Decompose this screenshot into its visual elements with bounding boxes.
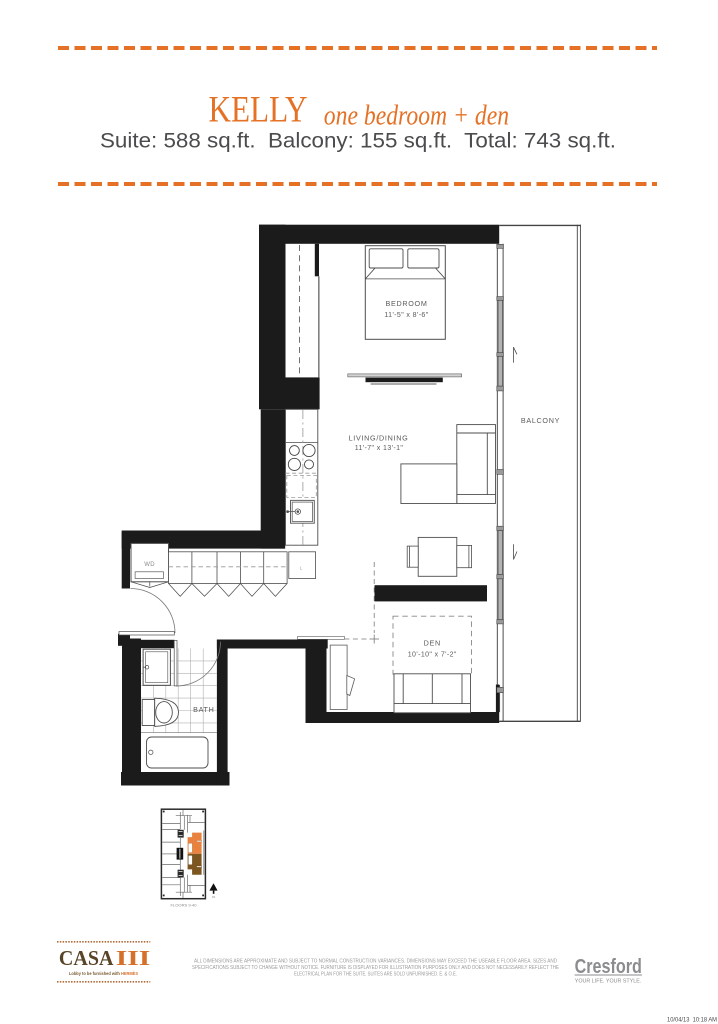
svg-text:Lobby to be furnished with HER: Lobby to be furnished with HERMÈS bbox=[69, 969, 138, 976]
svg-text:ALL DIMENSIONS ARE APPROXIMATE: ALL DIMENSIONS ARE APPROXIMATE AND SUBJE… bbox=[194, 958, 557, 964]
svg-text:YOUR LIFE. YOUR STYLE.: YOUR LIFE. YOUR STYLE. bbox=[575, 979, 642, 985]
svg-text:DEN: DEN bbox=[424, 639, 441, 648]
svg-text:CASA: CASA bbox=[59, 946, 114, 970]
svg-text:N: N bbox=[213, 895, 215, 899]
svg-text:10/04/13 10:18 AM: 10/04/13 10:18 AM bbox=[667, 1017, 717, 1024]
svg-text:FLOORS 9-40: FLOORS 9-40 bbox=[171, 902, 198, 907]
svg-text:WD: WD bbox=[144, 562, 155, 568]
svg-text:III: III bbox=[116, 946, 151, 970]
svg-text:11'-7" x 13'-1": 11'-7" x 13'-1" bbox=[355, 445, 404, 452]
svg-text:BEDROOM: BEDROOM bbox=[385, 299, 427, 308]
svg-text:LIVING/DINING: LIVING/DINING bbox=[349, 434, 409, 443]
svg-text:ELECTRICAL PLAN FOR THE SUITE.: ELECTRICAL PLAN FOR THE SUITE. SUITES AR… bbox=[294, 972, 457, 978]
svg-text:BALCONY: BALCONY bbox=[521, 416, 560, 425]
svg-text:BATH: BATH bbox=[193, 705, 214, 714]
svg-text:SPECIFICATIONS SUBJECT TO CHAN: SPECIFICATIONS SUBJECT TO CHANGE WITHOUT… bbox=[192, 965, 560, 971]
svg-text:10'-10" x 7'-2": 10'-10" x 7'-2" bbox=[408, 652, 457, 659]
svg-text:11'-5" x 8'-6": 11'-5" x 8'-6" bbox=[384, 312, 428, 319]
